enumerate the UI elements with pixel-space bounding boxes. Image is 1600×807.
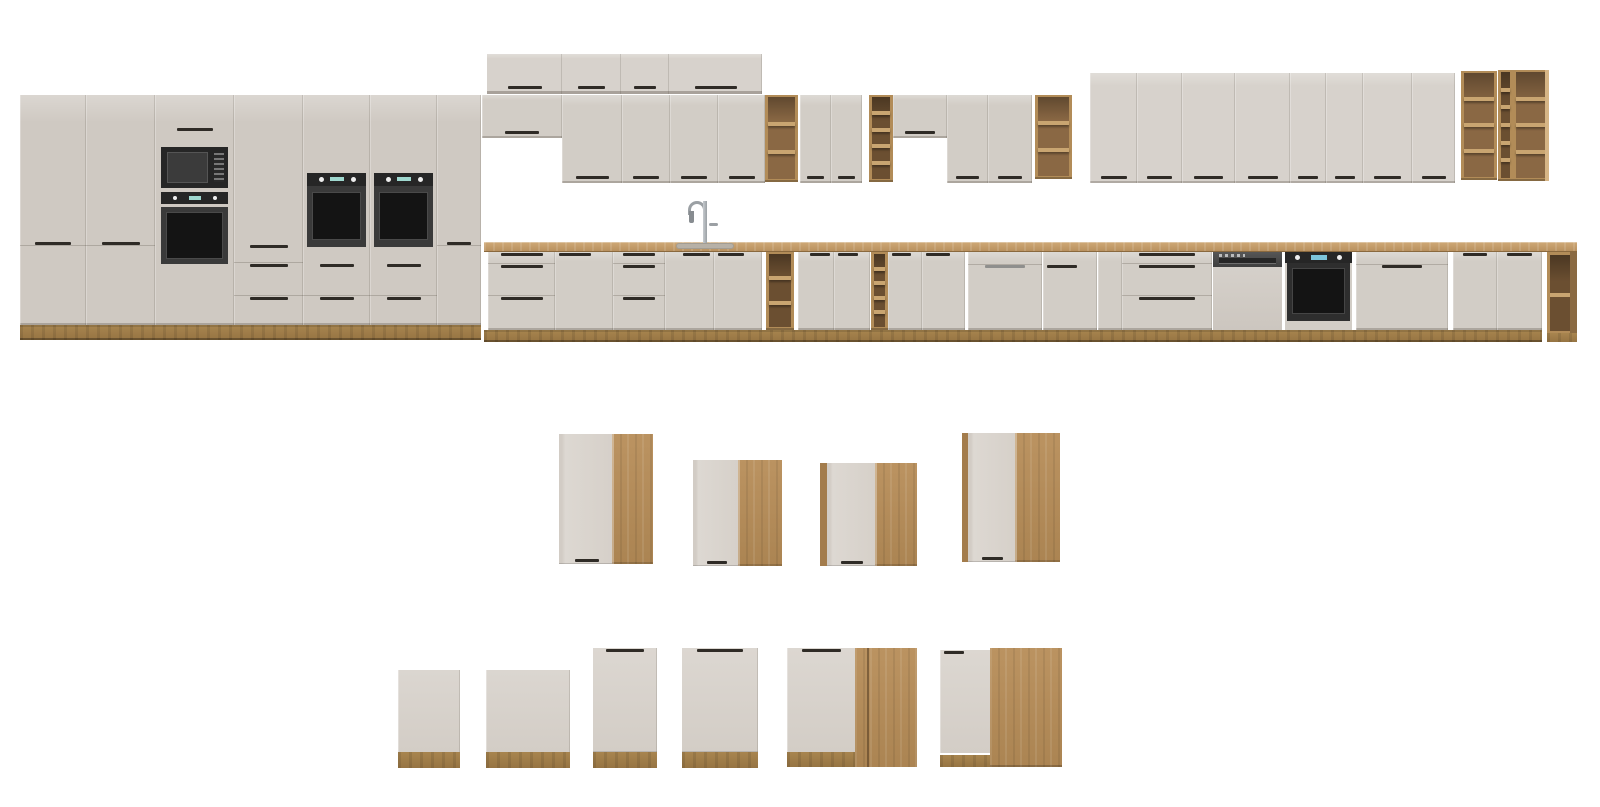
wall-wine-shelf-2-shelf-2	[1501, 105, 1510, 109]
corner-base-cabinet-1	[787, 648, 917, 767]
appliance-front-panel-1-plinth	[398, 752, 460, 768]
tall-oven-unit-1-display	[330, 177, 344, 181]
tall-oven-microwave-unit	[155, 95, 234, 325]
faucet-head	[689, 211, 694, 223]
semi-integrated-dishwasher-handle-recess	[1219, 258, 1276, 264]
oven-knob-right	[213, 196, 217, 200]
appliance-front-panel-2	[486, 670, 570, 768]
base-drawers-1-seam-2	[488, 295, 555, 296]
corner-wall-cabinet-4-handle	[982, 557, 1003, 560]
wall-open-shelf-3-shelf-1	[1464, 97, 1494, 101]
built-in-oven-base	[1285, 252, 1352, 330]
wall-door-3-handle	[681, 176, 707, 179]
corner-wall-cabinet-4	[962, 433, 1060, 562]
top-box-1	[487, 54, 562, 94]
wall-door-4	[718, 95, 765, 183]
semi-integrated-dishwasher-buttons	[1219, 254, 1245, 257]
tall-oven-unit-1	[303, 95, 370, 325]
tall-oven-microwave-unit-door-handle	[177, 128, 213, 131]
base-door-7-handle	[1463, 253, 1487, 256]
base-front-door-2-door	[682, 648, 758, 752]
base-door-3	[834, 252, 870, 330]
tall-oven-unit-1-handle-2	[320, 297, 354, 300]
base-drawers-3-seam-2	[1122, 295, 1212, 296]
base-front-door-2	[682, 648, 758, 768]
base-drawers-2-seam-1	[613, 263, 665, 264]
corner-open-shelf	[1547, 252, 1577, 342]
base-filler-door	[1098, 252, 1122, 330]
wall-open-shelf-4-shelf-2	[1516, 123, 1546, 127]
wall-door-6-handle	[838, 176, 855, 179]
wall-door-5	[800, 95, 831, 183]
wall-tall-door-6-handle	[1335, 176, 1355, 179]
wall-tall-door-7	[1363, 73, 1412, 183]
built-in-oven-base-glass	[1292, 268, 1345, 314]
base-drawers-2-seam-2	[613, 295, 665, 296]
tall-oven-unit-1-door	[307, 186, 366, 247]
wall-wine-shelf-1-shelf-4	[872, 161, 890, 165]
base-drawers-3-handle-1	[1139, 253, 1195, 256]
corner-open-shelf-side-panel	[1570, 252, 1577, 342]
wall-door-5-handle	[807, 176, 824, 179]
wall-tall-door-5-handle	[1298, 176, 1318, 179]
wall-wine-shelf-2-interior	[1501, 72, 1510, 178]
appliance-front-panel-1-front-panel	[398, 670, 460, 752]
wall-wine-shelf-1-shelf-2	[872, 128, 890, 132]
base-drawers-1	[488, 252, 555, 330]
base-drawers-2-handle-1	[623, 253, 655, 256]
base-drawers-1-handle-2	[501, 265, 543, 268]
integrated-dishwasher-panel-1-handle	[985, 265, 1025, 268]
top-box-2-handle	[578, 86, 605, 89]
wall-wine-shelf-2-shelf-5	[1501, 158, 1510, 162]
tall-pantry-2-seam	[86, 245, 155, 246]
microwave	[161, 147, 228, 188]
tall-drawer-unit-seam-1	[234, 262, 303, 263]
wall-door-4-handle	[729, 176, 755, 179]
wall-wine-shelf-1-shelf-3	[872, 144, 890, 148]
tall-pantry-2	[86, 95, 155, 325]
wall-door-2-handle	[633, 176, 659, 179]
wall-tall-door-5	[1290, 73, 1326, 183]
tall-drawer-unit-handle-1	[250, 245, 288, 248]
corner-base-cabinet-2-handle	[944, 651, 964, 654]
wall-open-shelf-1-shelf-1	[768, 122, 795, 126]
corner-wall-cabinet-3-side-strip	[820, 463, 827, 566]
base-door-1	[555, 252, 613, 330]
wall-open-shelf-4-shelf-1	[1516, 97, 1546, 101]
base-drawers-1-seam-1	[488, 263, 555, 264]
corner-wall-cabinet-2-handle	[707, 561, 727, 564]
built-in-oven-base-control-strip	[1285, 252, 1352, 263]
base-door-2	[798, 252, 834, 330]
base-door-8	[1497, 252, 1542, 330]
base-front-door-1	[593, 648, 657, 768]
corner-wall-cabinet-2-wood-panel	[738, 460, 782, 566]
appliance-front-panel-2-plinth	[486, 752, 570, 768]
faucet-stem	[703, 201, 707, 243]
wall-door-7-handle	[956, 176, 979, 179]
tall-oven-unit-1-control-strip	[307, 173, 366, 186]
tall-oven-unit-1-handle-1	[320, 264, 354, 267]
wall-open-shelf-4	[1513, 70, 1549, 181]
base-door-6-handle	[1047, 265, 1077, 268]
wall-door-2	[622, 95, 670, 183]
tall-drawer-unit	[234, 95, 303, 325]
corner-base-cabinet-1-handle	[802, 649, 841, 652]
semi-integrated-dishwasher	[1213, 252, 1282, 330]
appliance-front-panel-2-front-panel	[486, 670, 570, 752]
corner-base-cabinet-1-white-plinth	[787, 752, 855, 767]
tall-oven-unit-2-knob-left	[386, 177, 391, 182]
oven-display	[189, 196, 201, 200]
wall-tall-door-7-handle	[1374, 176, 1401, 179]
base-open-shelf-1	[766, 252, 794, 330]
base-drawers-2	[613, 252, 665, 330]
wall-open-shelf-1-interior	[768, 97, 795, 179]
wall-wine-shelf-2-shelf-3	[1501, 123, 1510, 127]
wall-wine-shelf-2	[1498, 70, 1513, 181]
base-drawers-3-seam-1	[1122, 263, 1212, 264]
countertop	[484, 242, 1577, 252]
tall-pantry-1-handle	[35, 242, 71, 245]
base-sink-door-right	[714, 252, 762, 330]
wall-open-shelf-2-shelf-1	[1038, 121, 1069, 125]
base-sink-door-left	[665, 252, 714, 330]
corner-wall-cabinet-2	[693, 460, 782, 566]
wall-tall-door-8	[1412, 73, 1455, 183]
oven-door	[161, 207, 228, 264]
base-door-8-handle	[1507, 253, 1532, 256]
wall-cabinet-short-1-handle	[505, 131, 539, 134]
wall-wine-shelf-1	[869, 95, 893, 182]
tall-pantry-1-seam	[20, 245, 86, 246]
top-box-3-handle	[634, 86, 656, 89]
wall-tall-door-3	[1182, 73, 1235, 183]
oven-knob-left	[173, 196, 177, 200]
wall-cabinet-short-2	[893, 95, 947, 138]
base-wine-shelf	[871, 252, 888, 330]
base-door-5-handle	[926, 253, 950, 256]
wall-open-shelf-3-shelf-3	[1464, 149, 1494, 153]
corner-wall-cabinet-4-white-door	[968, 433, 1015, 562]
corner-wall-cabinet-1-wood-panel	[612, 434, 653, 564]
faucet	[688, 199, 720, 243]
base-door-4	[888, 252, 922, 330]
wall-tall-door-1-handle	[1101, 176, 1127, 179]
tall-drawer-unit-handle-3	[250, 297, 288, 300]
tall-drawer-unit-seam-2	[234, 295, 303, 296]
wall-open-shelf-2-shelf-2	[1038, 148, 1069, 152]
tall-oven-unit-2-control-strip	[374, 173, 433, 186]
base-drawers-1-handle-1	[501, 253, 543, 256]
wall-door-3	[670, 95, 718, 183]
wall-tall-door-3-handle	[1194, 176, 1223, 179]
base-door-5	[922, 252, 965, 330]
top-box-4-handle	[695, 86, 737, 89]
base-front-door-1-plinth	[593, 752, 657, 768]
top-box-1-handle	[508, 86, 542, 89]
kitchen-scene	[0, 0, 1600, 807]
integrated-dishwasher-panel-2-handle	[1382, 265, 1422, 268]
wall-tall-door-4	[1235, 73, 1290, 183]
top-box-4	[669, 54, 762, 94]
base-door-1-handle	[559, 253, 591, 256]
built-in-oven-base-knob-left	[1295, 255, 1300, 260]
semi-integrated-dishwasher-control-strip	[1213, 252, 1282, 267]
built-in-oven-base-knob-right	[1337, 255, 1342, 260]
faucet-lever	[709, 223, 718, 226]
wall-door-1	[562, 95, 622, 183]
tall-oven-unit-1-seam	[303, 295, 370, 296]
base-open-shelf-1-shelf-1	[769, 276, 791, 280]
wall-open-shelf-4-interior	[1516, 72, 1546, 178]
wall-open-shelf-1-shelf-2	[768, 150, 795, 154]
tall-pantry-1	[20, 95, 86, 325]
integrated-dishwasher-panel-2	[1356, 252, 1448, 330]
base-front-door-1-handle	[606, 649, 644, 652]
wall-tall-door-2-handle	[1147, 176, 1172, 179]
base-wine-shelf-shelf-3	[874, 296, 885, 300]
tall-oven-unit-1-knob-left	[319, 177, 324, 182]
oven-glass	[166, 212, 223, 259]
tall-pantry-2-handle	[102, 242, 140, 245]
microwave-screen	[167, 152, 208, 183]
wall-door-1-handle	[576, 176, 609, 179]
base-drawers-3-handle-3	[1139, 297, 1195, 300]
corner-wall-cabinet-3-handle	[841, 561, 863, 564]
wall-cabinet-short-1	[482, 95, 562, 138]
wall-tall-door-4-handle	[1248, 176, 1278, 179]
base-sink-door-left-handle	[683, 253, 710, 256]
tall-oven-unit-1-glass	[312, 192, 361, 240]
wall-door-8-handle	[998, 176, 1022, 179]
wall-open-shelf-3	[1461, 71, 1497, 180]
corner-open-shelf-plinth	[1547, 333, 1577, 342]
base-door-2-handle	[810, 253, 830, 256]
base-door-7	[1453, 252, 1497, 330]
top-box-3	[621, 54, 669, 94]
base-drawers-1-handle-3	[501, 297, 543, 300]
corner-wall-cabinet-1-handle	[575, 559, 599, 562]
corner-base-cabinet-2-wood-panel	[990, 648, 1062, 767]
corner-wall-cabinet-1-white-door	[559, 434, 612, 564]
tall-oven-unit-2-display	[397, 177, 411, 181]
integrated-dishwasher-panel-1	[968, 252, 1042, 330]
base-drawers-2-handle-2	[623, 265, 655, 268]
base-open-shelf-1-shelf-2	[769, 301, 791, 305]
base-wine-shelf-shelf-2	[874, 281, 885, 285]
tall-run-plinth	[20, 325, 481, 340]
wall-tall-door-8-handle	[1422, 176, 1446, 179]
built-in-oven-base-door	[1287, 263, 1350, 321]
base-sink-door-right-handle	[718, 253, 744, 256]
appliance-front-panel-1	[398, 670, 460, 768]
corner-base-cabinet-1-wood-panel	[855, 648, 917, 767]
corner-open-shelf-shelf	[1550, 293, 1570, 297]
wall-door-7	[947, 95, 988, 183]
base-front-door-2-handle	[697, 649, 743, 652]
wall-open-shelf-4-shelf-3	[1516, 150, 1546, 154]
base-drawers-3-handle-2	[1139, 265, 1195, 268]
base-wine-shelf-interior	[874, 254, 885, 327]
wall-open-shelf-1	[765, 95, 798, 182]
corner-wall-cabinet-3-white-door	[827, 463, 875, 566]
wall-open-shelf-2	[1035, 95, 1072, 179]
corner-wall-cabinet-3-wood-panel	[875, 463, 917, 566]
tall-pantry-3-seam	[437, 245, 481, 246]
corner-open-shelf-interior	[1550, 255, 1570, 331]
corner-wall-cabinet-4-wood-panel	[1015, 433, 1060, 562]
corner-wall-cabinet-1	[559, 434, 653, 564]
tall-pantry-3-handle	[447, 242, 471, 245]
tall-oven-unit-2-knob-right	[418, 177, 423, 182]
tall-oven-unit-2-glass	[379, 192, 428, 240]
wall-open-shelf-3-interior	[1464, 73, 1494, 177]
corner-base-cabinet-2	[940, 648, 1062, 767]
tall-drawer-unit-handle-2	[250, 264, 288, 267]
corner-wall-cabinet-2-white-door	[693, 460, 738, 566]
tall-oven-unit-2-handle-1	[387, 264, 421, 267]
base-door-6	[1043, 252, 1097, 330]
base-front-door-1-door	[593, 648, 657, 752]
base-drawers-2-handle-3	[623, 297, 655, 300]
wall-open-shelf-3-shelf-2	[1464, 123, 1494, 127]
base-door-4-handle	[892, 253, 911, 256]
microwave-buttons	[214, 153, 224, 182]
top-box-2	[562, 54, 621, 94]
corner-base-cabinet-2-white-plinth	[940, 755, 990, 767]
wall-open-shelf-4-side-highlight	[1545, 70, 1549, 181]
wall-tall-door-6	[1326, 73, 1363, 183]
wall-wine-shelf-1-interior	[872, 97, 890, 179]
tall-oven-unit-1-knob-right	[351, 177, 356, 182]
oven-control-strip	[161, 192, 228, 204]
tall-oven-unit-2-door	[374, 186, 433, 247]
tall-pantry-3	[437, 95, 481, 325]
tall-oven-unit-2-seam	[370, 295, 437, 296]
wall-door-6	[831, 95, 862, 183]
wall-wine-shelf-2-shelf-1	[1501, 88, 1510, 92]
corner-base-cabinet-1-wood-seam	[867, 648, 869, 767]
corner-wall-cabinet-3	[820, 463, 917, 566]
wall-open-shelf-2-interior	[1038, 97, 1069, 176]
wall-cabinet-short-2-handle	[905, 131, 935, 134]
tall-oven-unit-2	[370, 95, 437, 325]
base-door-3-handle	[838, 253, 858, 256]
wall-wine-shelf-1-shelf-1	[872, 111, 890, 115]
wall-tall-door-1	[1090, 73, 1137, 183]
wall-door-8	[988, 95, 1032, 183]
base-wine-shelf-shelf-1	[874, 267, 885, 271]
corner-base-cabinet-2-white-door	[940, 650, 990, 753]
base-plinth	[484, 330, 1542, 342]
built-in-oven-base-display	[1311, 255, 1327, 260]
semi-integrated-dishwasher-front-panel	[1213, 267, 1282, 330]
base-drawers-3	[1122, 252, 1212, 330]
built-in-oven-base-lower-sliver	[1285, 321, 1352, 330]
base-front-door-2-plinth	[682, 752, 758, 768]
corner-base-cabinet-1-white-door	[787, 648, 855, 752]
base-open-shelf-1-interior	[769, 254, 791, 327]
wall-wine-shelf-2-shelf-4	[1501, 141, 1510, 145]
wall-tall-door-2	[1137, 73, 1182, 183]
sink-cutout	[676, 243, 734, 249]
base-wine-shelf-shelf-4	[874, 310, 885, 314]
tall-oven-unit-2-handle-2	[387, 297, 421, 300]
